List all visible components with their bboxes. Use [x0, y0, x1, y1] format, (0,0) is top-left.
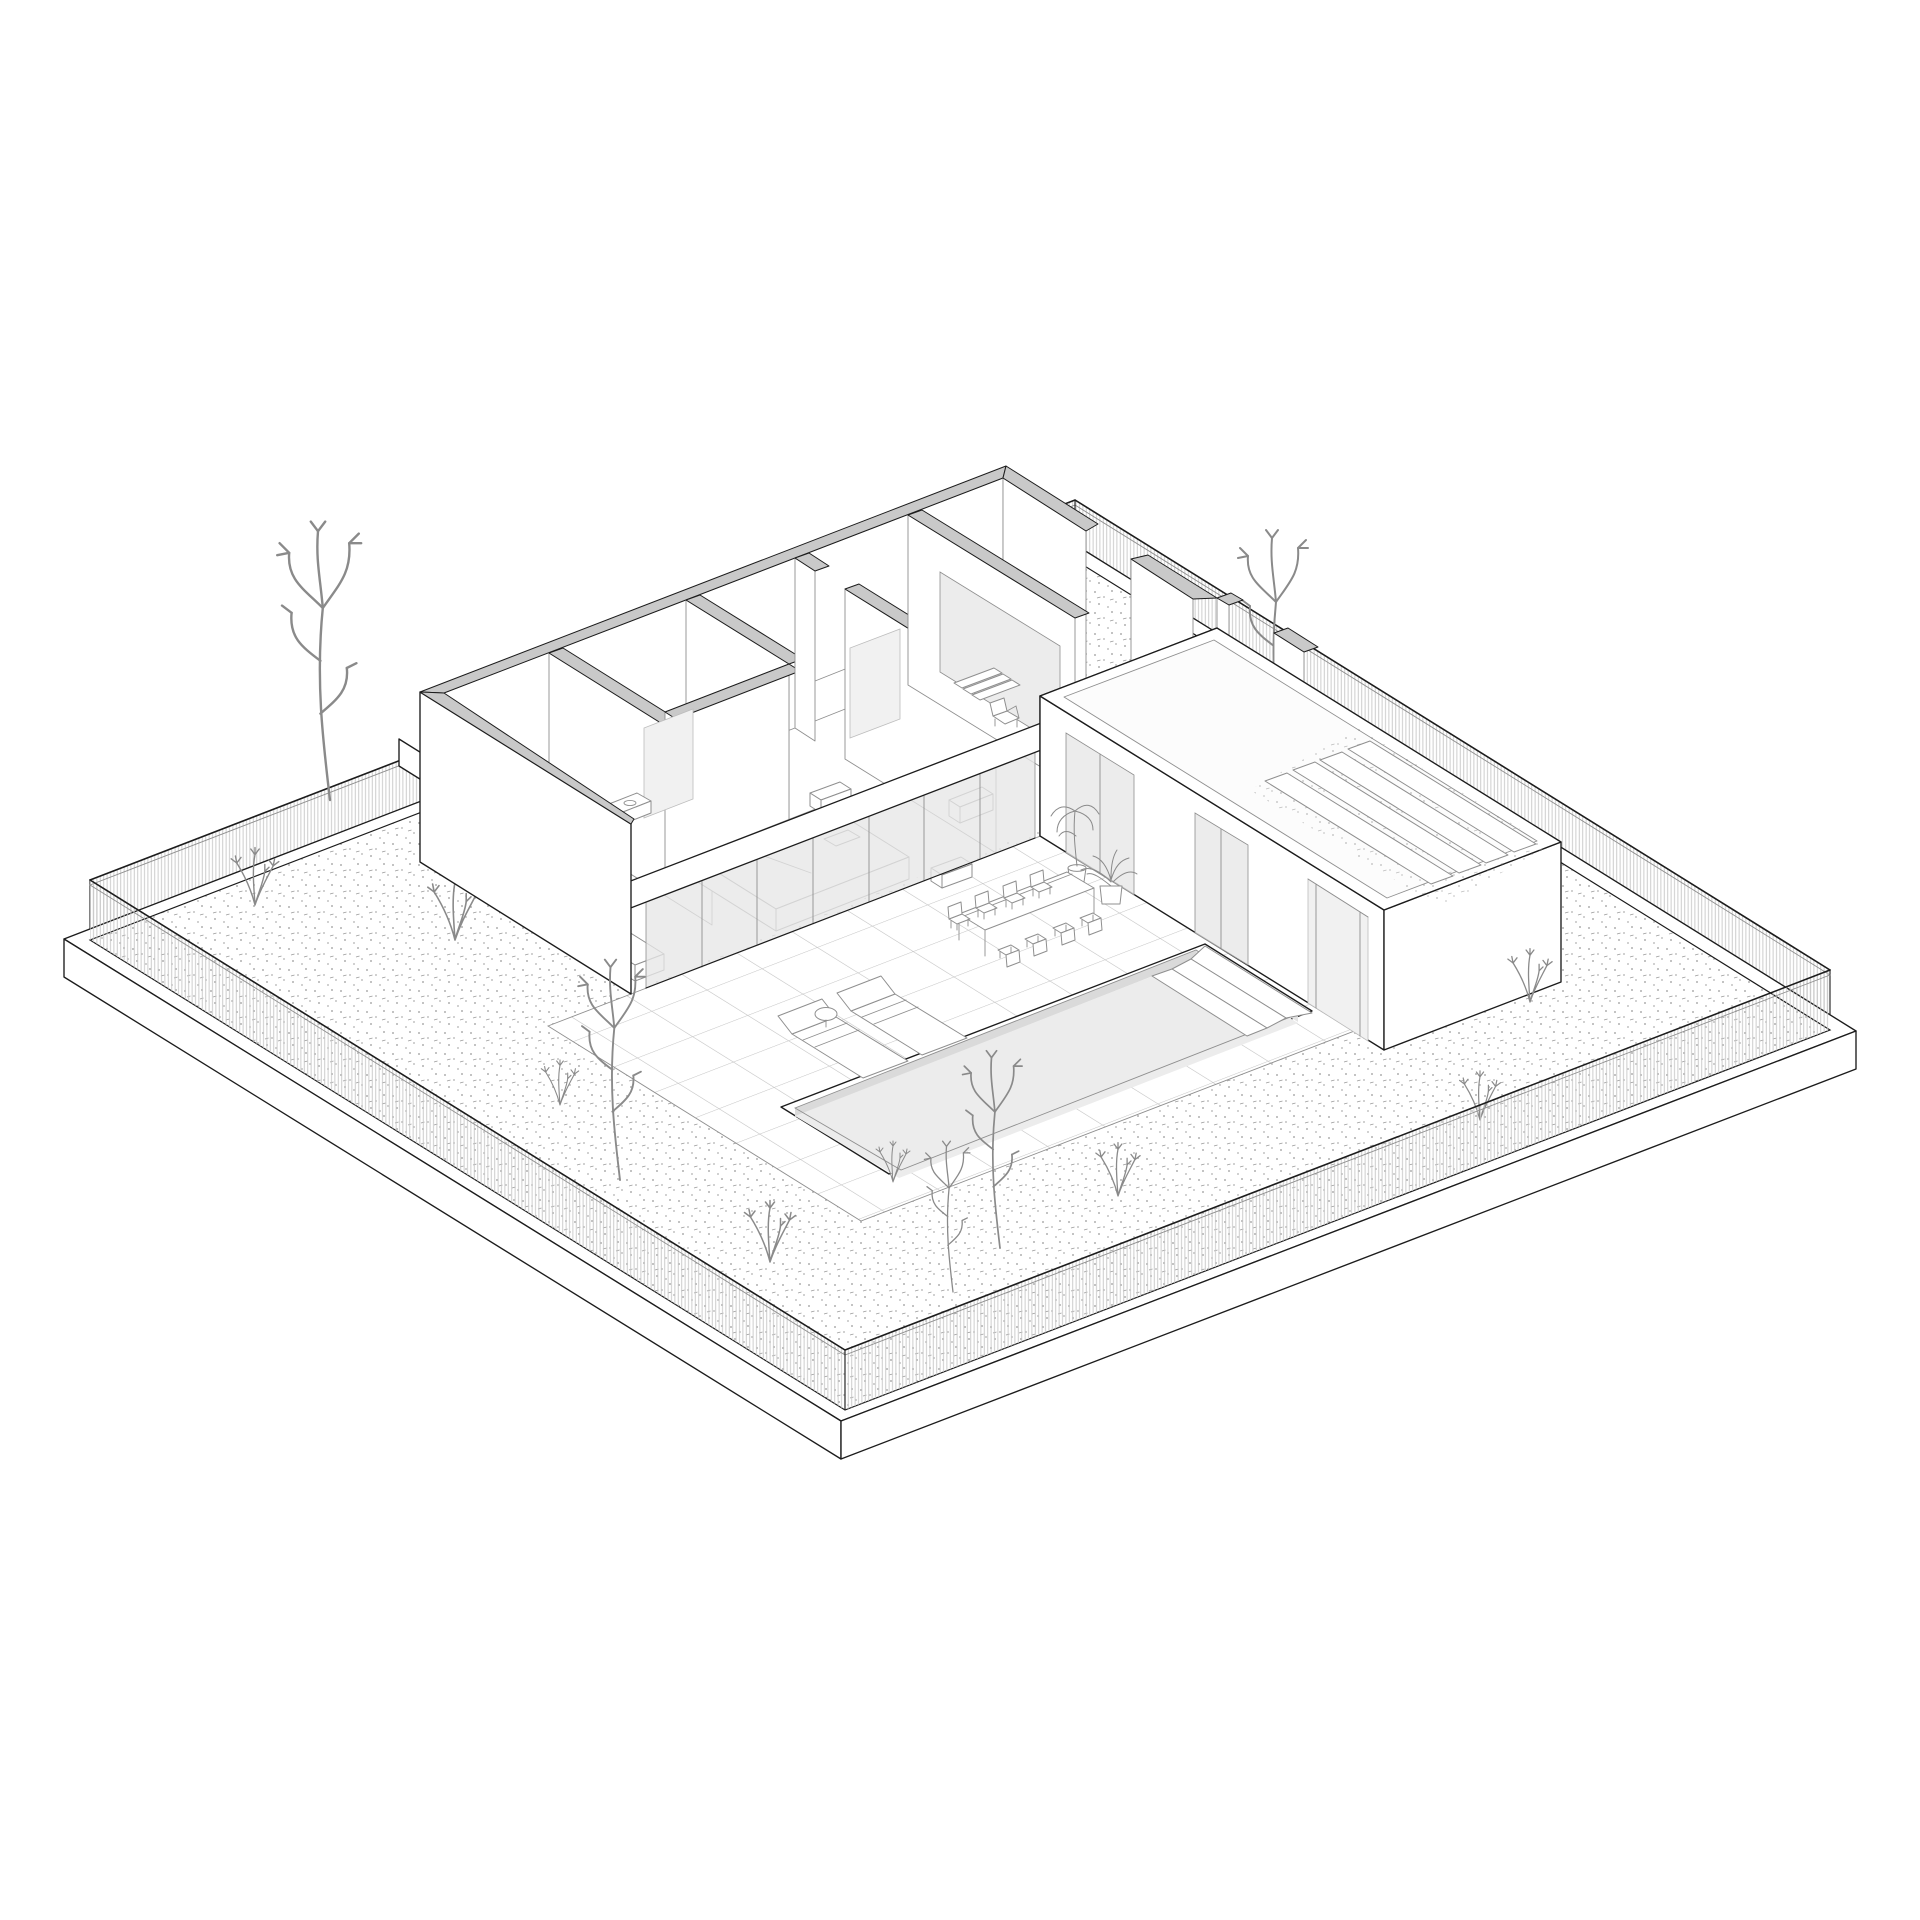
axonometric-drawing: [0, 0, 1920, 1920]
drawing-page: Black-and-white axonometric cutaway draw…: [0, 0, 1920, 1920]
